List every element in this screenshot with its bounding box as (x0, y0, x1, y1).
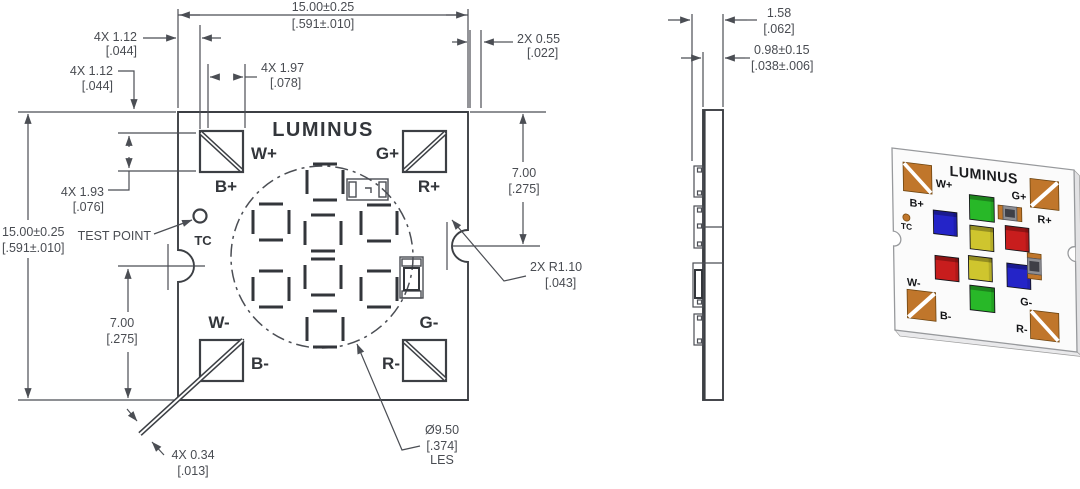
photo-pad-bottom-left (907, 289, 936, 321)
photo-label-r-plus: R+ (1037, 214, 1051, 228)
dim-edge-gap-mm: 2X 0.55 (517, 32, 560, 46)
photo-label-w-minus: W- (907, 276, 921, 290)
dim-inset-side-mm: 4X 1.12 (70, 64, 113, 78)
photo-led-row2-right-red (1005, 226, 1029, 252)
side-extension-lines (692, 14, 723, 161)
corner-pad-top-right (403, 131, 446, 172)
dim-notch-bottom-mm: 7.00 (110, 316, 134, 330)
dim-width-mm: 15.00±0.25 (292, 0, 355, 14)
pad-label-b-minus: B- (251, 354, 269, 373)
dim-les-diameter: Ø9.50 [.374] LES (357, 344, 459, 467)
front-view: LUMINUS W+ B+ G+ R+ W- B- G- R- (2, 0, 582, 478)
pad-label-g-minus: G- (420, 313, 439, 332)
corner-pad-bottom-right (403, 340, 446, 381)
photo-label-g-minus: G- (1020, 296, 1033, 309)
dim-pad-pitch: 4X 1.97 [.078] (210, 61, 304, 90)
photo-led-row2-center-yellow (970, 225, 994, 251)
dim-les-mm: Ø9.50 (425, 423, 459, 437)
photo-view: LUMINUS W+ B+ G+ R+ W- B- G- R- TC (892, 148, 1080, 358)
pad-label-w-plus: W+ (251, 144, 277, 163)
photo-label-b-minus: B- (940, 310, 952, 323)
test-point-callout: TEST POINT (78, 220, 192, 243)
dim-total-thickness: 1.58 [.062] (668, 6, 795, 36)
test-point-text: TEST POINT (78, 229, 152, 243)
dim-notch-top-mm: 7.00 (512, 166, 536, 180)
photo-label-g-plus: G+ (1012, 190, 1027, 204)
dim-height-in: [.591±.010] (2, 241, 64, 255)
side-board (703, 110, 723, 400)
drawing-sheet: LUMINUS W+ B+ G+ R+ W- B- G- R- (0, 0, 1080, 484)
dim-edge-gap-in: [.022] (527, 46, 558, 60)
photo-chip-component-right (1027, 253, 1041, 280)
dim-pitch-mm: 4X 1.97 (261, 61, 304, 75)
dim-width-in: [.591±.010] (292, 17, 354, 31)
dim-substrate-thickness: 0.98±0.15 [.038±.006] (681, 43, 813, 73)
led-row3-right (361, 271, 397, 307)
photo-pad-top-left (903, 162, 932, 194)
dim-total-mm: 1.58 (767, 6, 791, 20)
dim-les-in: [.374] (426, 439, 457, 453)
photo-tc-label: TC (901, 221, 912, 232)
dim-pad-height: 4X 1.93 [.076] (61, 136, 129, 214)
photo-pad-top-right (1030, 178, 1059, 210)
led-row3-center (305, 259, 341, 295)
photo-led-top-center-green (969, 195, 994, 223)
dim-substrate-in: [.038±.006] (751, 59, 813, 73)
side-view: 1.58 [.062] 0.98±0.15 [.038±.006] (668, 6, 813, 400)
pad-label-r-minus: R- (382, 354, 400, 373)
pad-label-r-plus: R+ (418, 177, 440, 196)
photo-led-row3-center-yellow (968, 255, 992, 281)
photo-chip-component-top (998, 205, 1022, 222)
led-bottom-center (307, 311, 343, 347)
led-row2-center (305, 215, 341, 251)
photo-label-w-plus: W+ (936, 178, 953, 192)
dim-pad-inset-top: 4X 1.12 [.044] (94, 30, 221, 58)
dim-radius-mm: 2X R1.10 (530, 260, 582, 274)
photo-label-b-plus: B+ (909, 197, 923, 211)
led-row3-left (253, 271, 289, 307)
dim-board-width: 15.00±0.25 [.591±.010] (178, 0, 468, 31)
dim-notch-radius: 2X R1.10 [.043] (452, 220, 582, 290)
pad-label-w-minus: W- (208, 313, 229, 332)
pad-label-b-plus: B+ (215, 177, 237, 196)
dim-les-suffix: LES (430, 453, 454, 467)
dim-trace-mm: 4X 0.34 (171, 448, 214, 462)
dim-notch-from-bottom: 7.00 [.275] (106, 269, 137, 398)
dim-pitch-in: [.078] (270, 76, 301, 90)
dim-inset-side-in: [.044] (82, 79, 113, 93)
dim-substrate-mm: 0.98±0.15 (754, 43, 810, 57)
dim-pad-height-in: [.076] (73, 200, 104, 214)
mechanical-drawing-svg: LUMINUS W+ B+ G+ R+ W- B- G- R- (0, 0, 1080, 484)
test-point-circle (194, 210, 207, 223)
dim-notch-from-top: 7.00 [.275] (508, 114, 539, 244)
dim-trace-in: [.013] (177, 464, 208, 478)
brand-logo: LUMINUS (272, 119, 374, 141)
dim-notch-top-in: [.275] (508, 182, 539, 196)
led-top-center (307, 164, 343, 200)
dim-pad-inset-side: 4X 1.12 [.044] (70, 64, 134, 109)
led-row2-right (361, 205, 397, 241)
dim-total-in: [.062] (763, 22, 794, 36)
dim-radius-in: [.043] (545, 276, 576, 290)
dim-board-height: 15.00±0.25 [.591±.010] (2, 114, 65, 398)
photo-pad-bottom-right (1030, 310, 1059, 342)
photo-led-row3-left-red (935, 255, 959, 281)
photo-label-r-minus: R- (1016, 323, 1028, 336)
dim-pad-height-mm: 4X 1.93 (61, 185, 104, 199)
dim-notch-bottom-in: [.275] (106, 332, 137, 346)
photo-led-bottom-center-green (970, 285, 995, 313)
led-array (253, 164, 397, 347)
dim-trace-width: 4X 0.34 [.013] (127, 340, 243, 478)
tc-label: TC (194, 233, 212, 248)
dim-height-mm: 15.00±0.25 (2, 225, 65, 239)
chip-component-right (400, 257, 423, 298)
dim-inset-top-in: [.044] (106, 44, 137, 58)
corner-pad-top-left (200, 131, 243, 172)
pad-label-g-plus: G+ (376, 144, 399, 163)
side-led-bumps (693, 166, 703, 345)
chip-component-top (347, 179, 388, 200)
photo-led-row2-left-blue (933, 210, 957, 236)
dim-inset-top-mm: 4X 1.12 (94, 30, 137, 44)
led-row2-left (253, 204, 289, 240)
